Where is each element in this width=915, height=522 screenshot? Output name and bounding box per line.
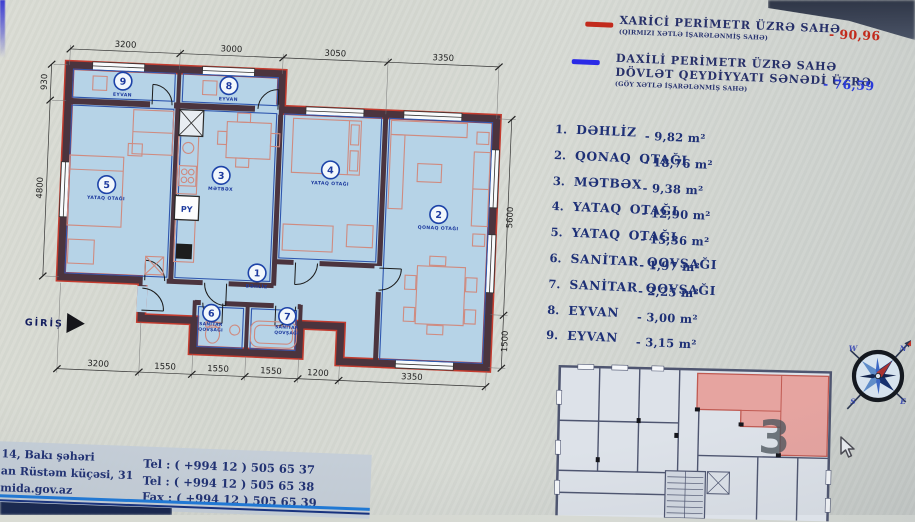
svg-text:1500: 1500	[500, 330, 511, 352]
svg-text:3000: 3000	[220, 44, 242, 55]
svg-text:3: 3	[218, 171, 225, 182]
svg-text:3350: 3350	[401, 372, 423, 383]
window-edge-strip	[0, 0, 5, 58]
svg-text:8: 8	[225, 81, 232, 92]
mouse-cursor-icon	[840, 436, 860, 460]
svg-text:4800: 4800	[35, 177, 46, 199]
entry-label: GİRİŞ	[25, 317, 64, 330]
legend: XARİCİ PERİMETR ÜZRƏ SAHƏ (QIRMIZI XƏTLƏ…	[568, 6, 915, 124]
svg-text:E: E	[899, 397, 906, 406]
legend-line-red-icon	[585, 22, 613, 28]
svg-text:3350: 3350	[432, 53, 454, 64]
shaft-label: PY	[181, 205, 193, 214]
svg-text:2: 2	[435, 210, 442, 221]
svg-text:4: 4	[327, 165, 334, 176]
building-key-plan: 3	[544, 360, 842, 522]
svg-text:EYVAN: EYVAN	[113, 92, 132, 99]
room-marker-8: 8 EYVAN	[219, 76, 239, 103]
svg-text:MƏTBƏX: MƏTBƏX	[208, 186, 233, 193]
compass-rose-icon: N W S E	[845, 326, 911, 438]
svg-text:1550: 1550	[260, 366, 282, 377]
svg-text:5: 5	[103, 180, 110, 191]
room-marker-9: 9 EYVAN	[113, 72, 133, 99]
svg-text:6: 6	[208, 308, 215, 319]
screen-photo: PY 9 EYVAN 8 EYVAN 5 YATAQ OTAĞI 3 MƏTBƏ…	[0, 0, 915, 515]
svg-text:7: 7	[284, 312, 291, 323]
svg-text:S: S	[850, 397, 856, 406]
svg-text:930: 930	[40, 74, 51, 91]
legend-value-exterior: - 90,96	[829, 26, 881, 43]
svg-text:3050: 3050	[324, 49, 346, 60]
entry: GİRİŞ	[24, 311, 85, 333]
svg-text:3200: 3200	[87, 359, 109, 370]
legend-value-interior: - 76,59	[823, 76, 875, 93]
svg-text:1550: 1550	[154, 362, 176, 373]
svg-text:N: N	[899, 344, 908, 353]
svg-text:3200: 3200	[114, 40, 136, 51]
svg-text:9: 9	[119, 77, 126, 88]
legend-line-blue-icon	[572, 59, 600, 65]
unit-number: 3	[758, 410, 791, 465]
svg-text:1: 1	[254, 268, 261, 279]
svg-text:W: W	[849, 344, 859, 353]
svg-text:EYVAN: EYVAN	[219, 96, 238, 103]
svg-text:5600: 5600	[505, 206, 516, 228]
floor-plan: PY 9 EYVAN 8 EYVAN 5 YATAQ OTAĞI 3 MƏTBƏ…	[0, 14, 569, 437]
entry-arrow-icon	[66, 313, 85, 334]
svg-text:1200: 1200	[307, 368, 329, 379]
address-block: 14, Bakı şəhəri an Rüstəm küçəsi, 31 mid…	[0, 445, 134, 501]
svg-text:1550: 1550	[207, 364, 229, 375]
